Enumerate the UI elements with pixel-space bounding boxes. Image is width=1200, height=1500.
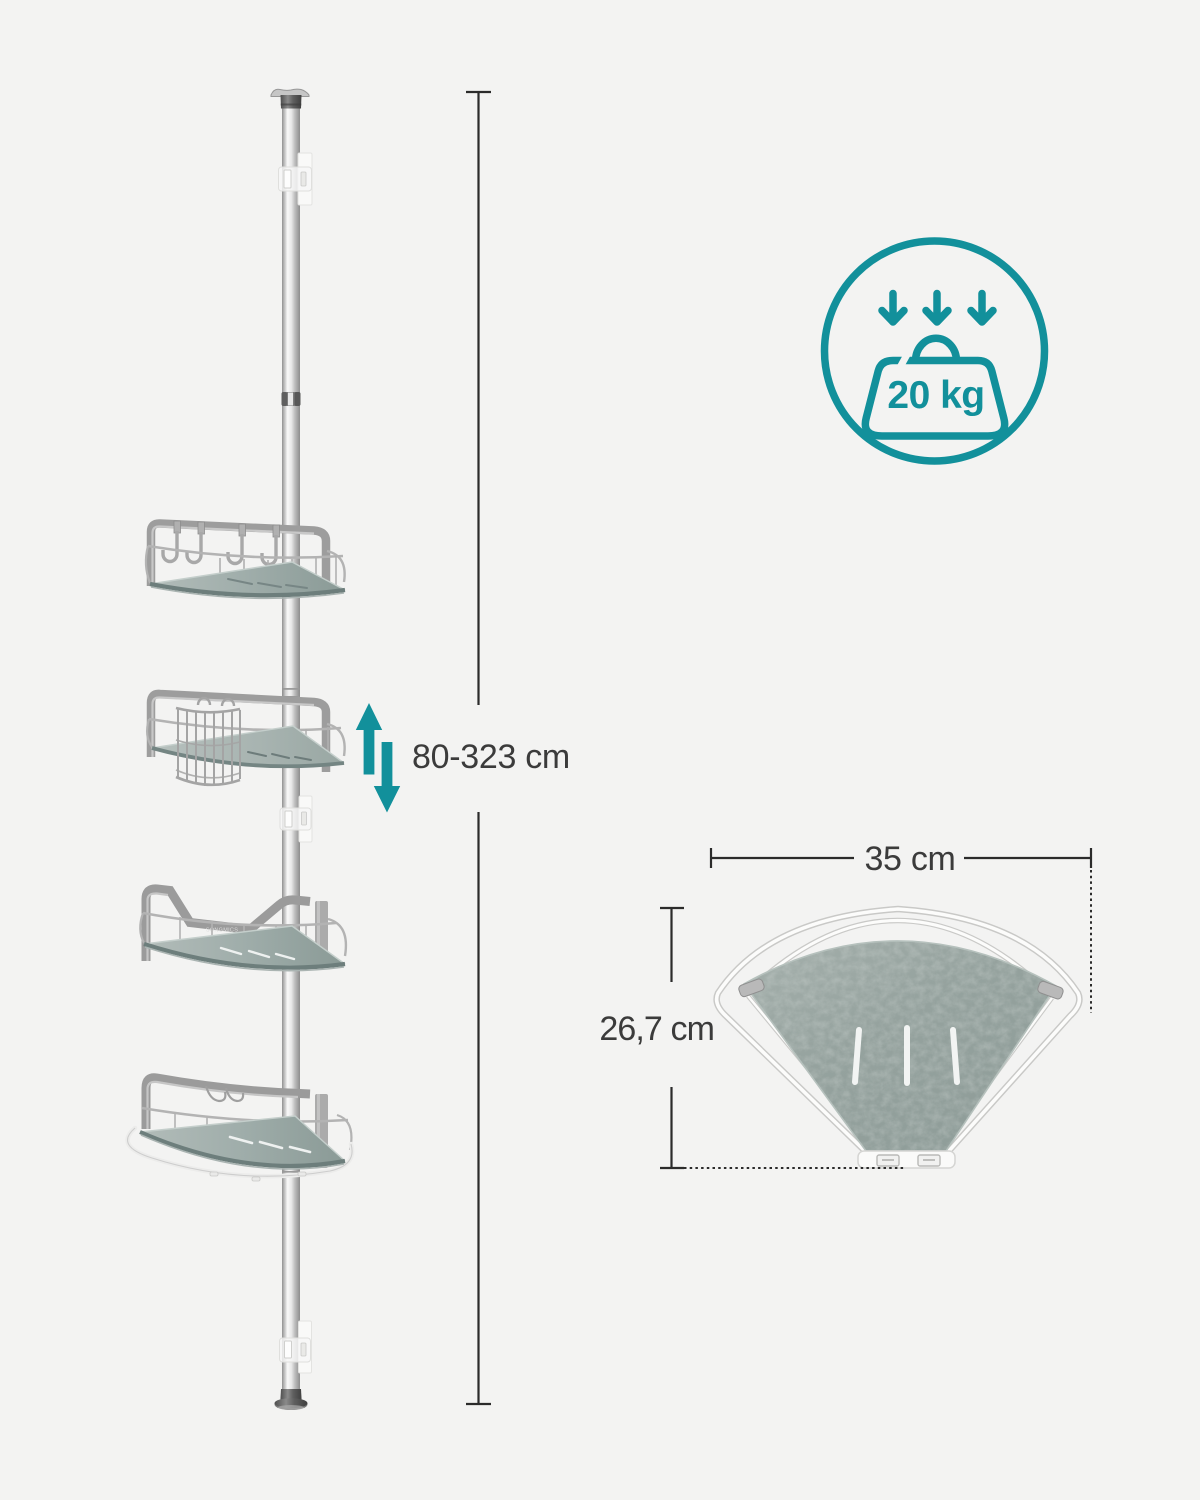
svg-text:80-323 cm: 80-323 cm [412, 738, 570, 776]
svg-text:26,7 cm: 26,7 cm [599, 1010, 714, 1048]
svg-text:20 kg: 20 kg [887, 374, 984, 417]
svg-text:35 cm: 35 cm [864, 840, 955, 878]
